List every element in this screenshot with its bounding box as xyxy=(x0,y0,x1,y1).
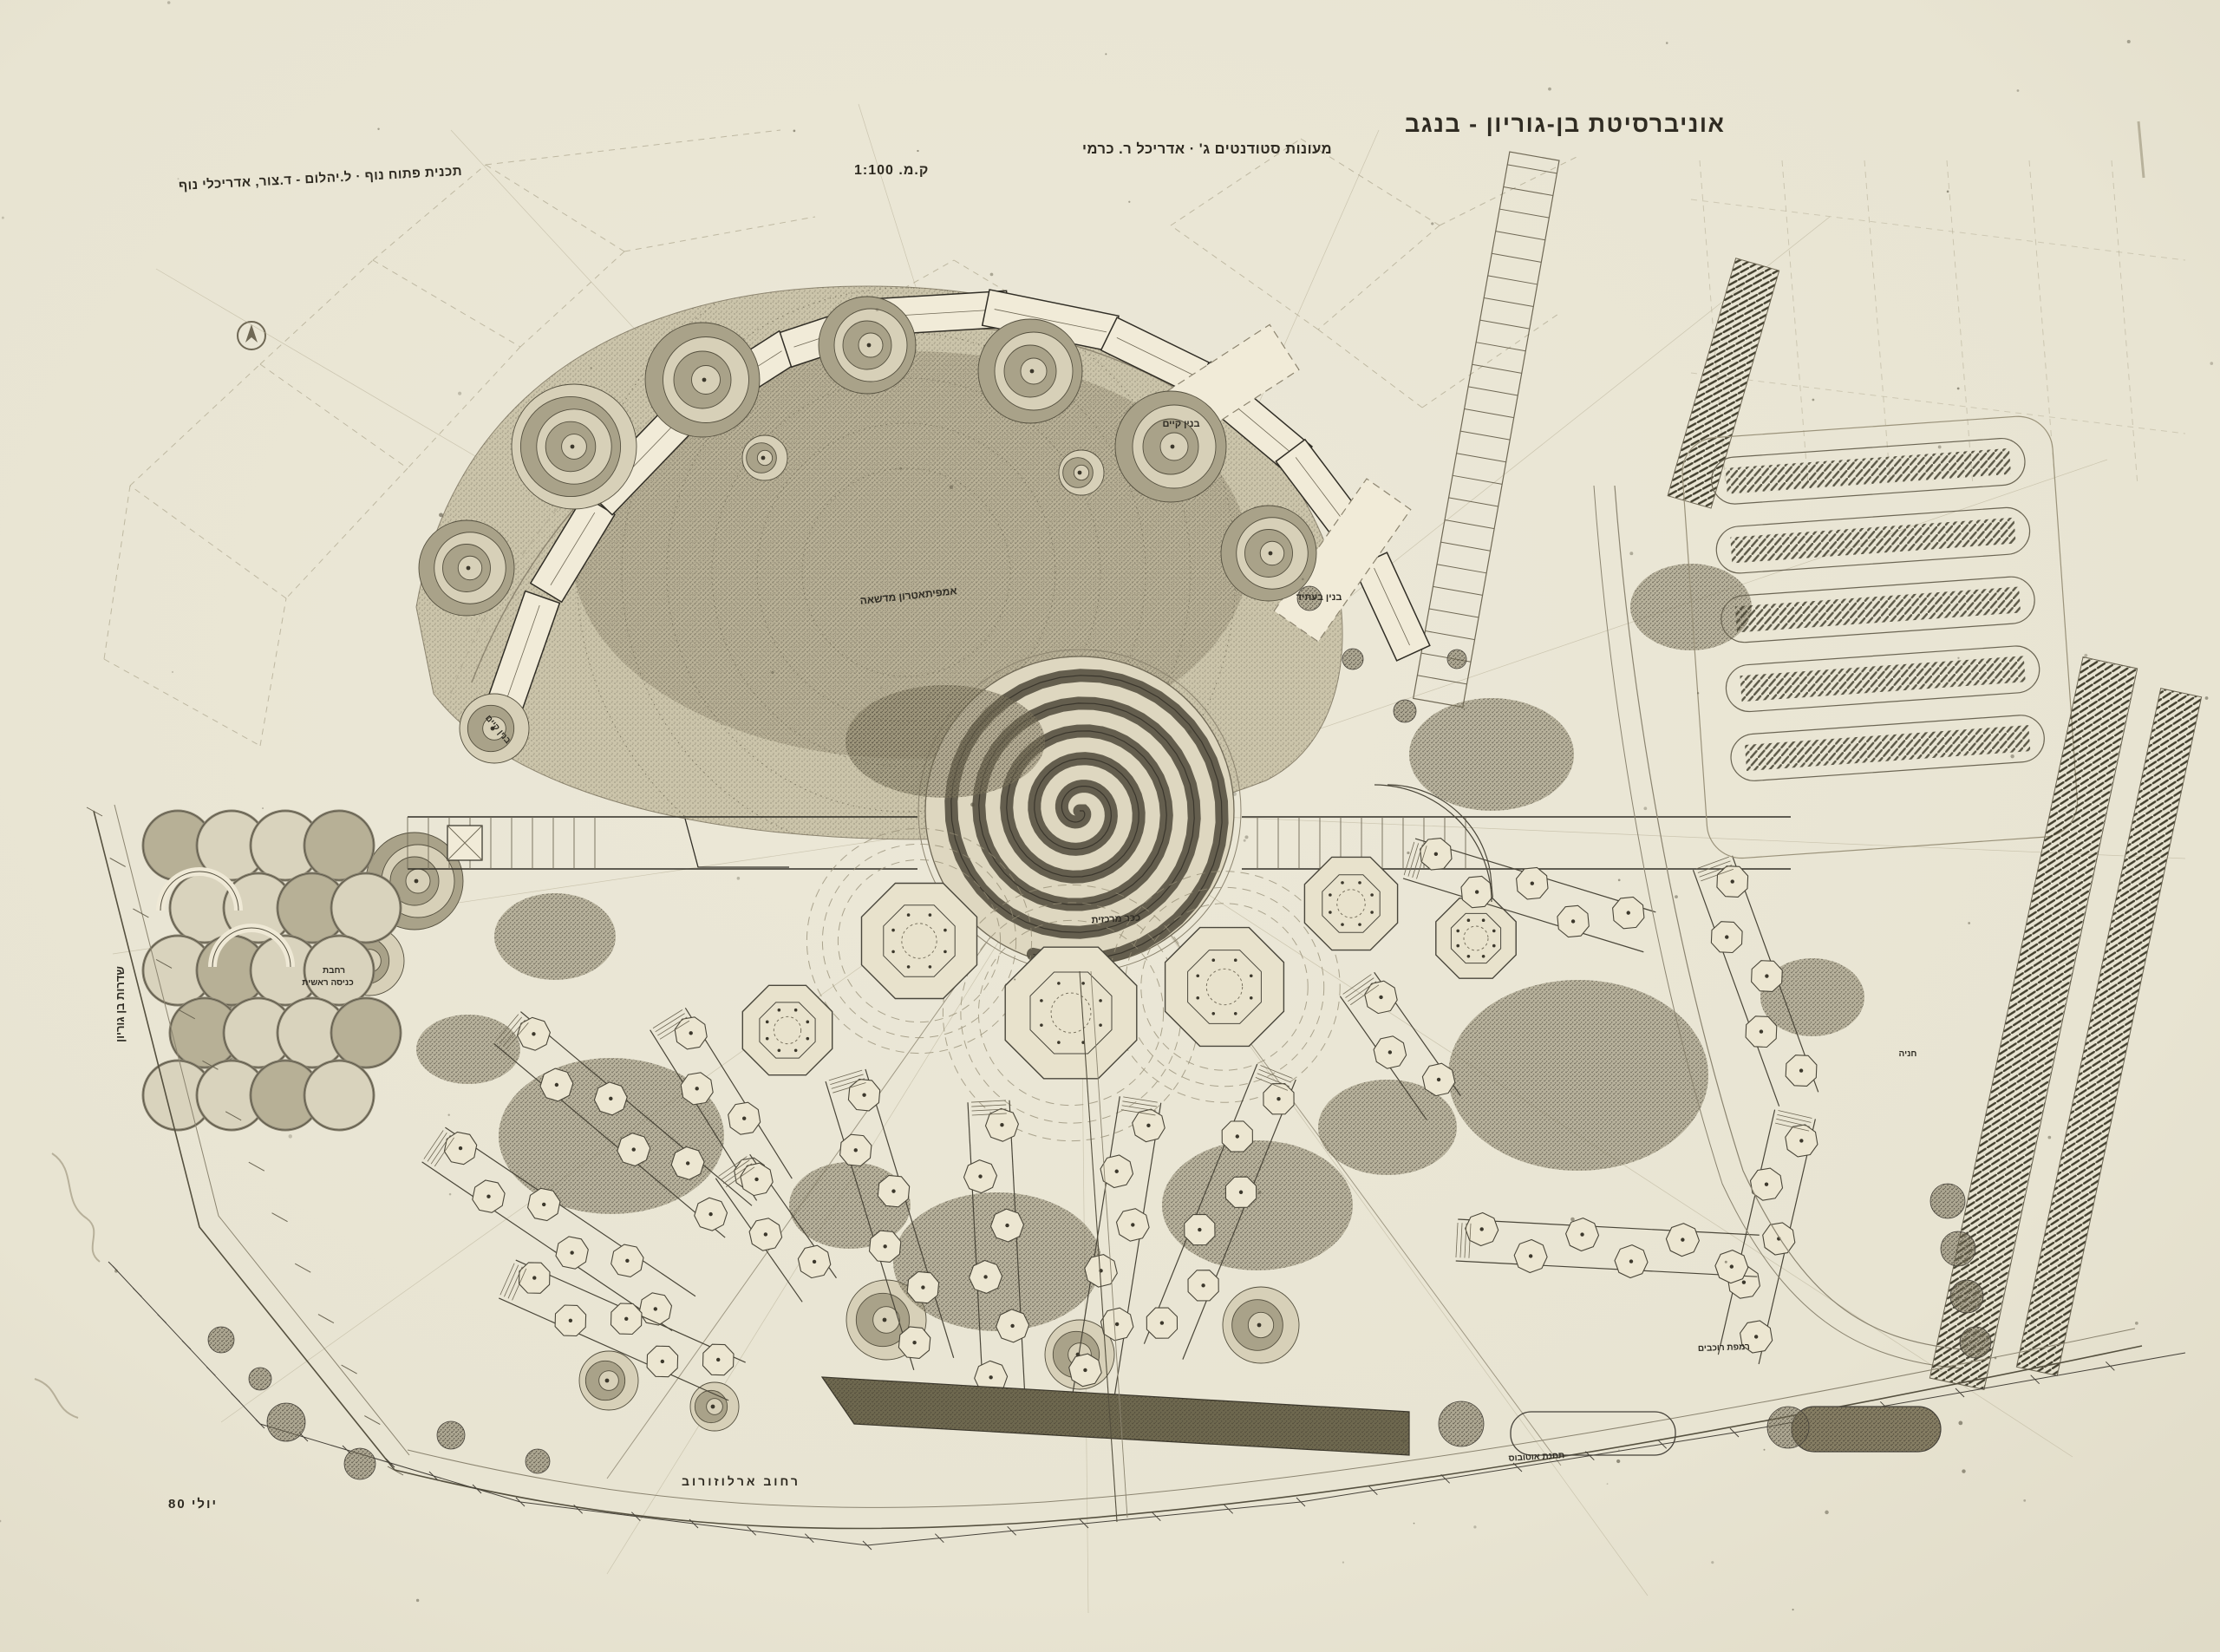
plan-label: חניה xyxy=(1899,1049,1917,1059)
scale-label: ק.מ. 1:100 xyxy=(854,163,929,179)
site-plan-drawing: אמפיתאטרון מדשאהבנין קייםבנין קייםבנין ב… xyxy=(0,0,2220,1652)
project-credit: מעונות סטודנטים ג' · אדריכל ר. כרמי xyxy=(1082,141,1332,158)
plan-label: בנין בעתיד xyxy=(1296,592,1342,603)
street-label-bottom: רחוב ארלוזורוב xyxy=(682,1474,800,1488)
plan-label: כניסה ראשית xyxy=(302,978,354,988)
page-title: אוניברסיטת בן-גוריון - בנגב xyxy=(1405,111,1725,138)
plan-label: רמפת רוכבים xyxy=(1698,1342,1750,1354)
street-label-left: שדרות בן גוריון xyxy=(114,966,127,1042)
plan-label: רחבת xyxy=(323,966,345,976)
plan-label: בנין קיים xyxy=(1162,419,1199,429)
sheet: אמפיתאטרון מדשאהבנין קייםבנין קייםבנין ב… xyxy=(0,0,2220,1652)
date-label: יולי 80 xyxy=(168,1497,218,1512)
